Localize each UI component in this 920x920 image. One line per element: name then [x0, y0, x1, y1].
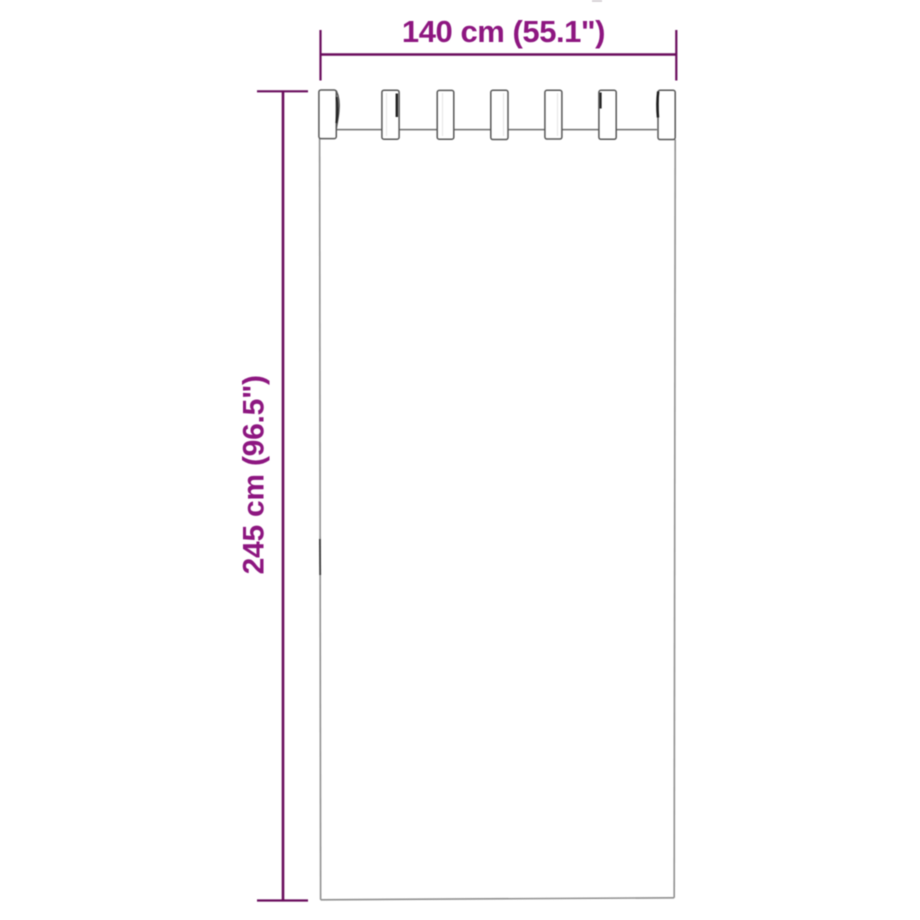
svg-text:245 cm (96.5"): 245 cm (96.5"): [238, 375, 271, 574]
svg-text:140 cm (55.1"): 140 cm (55.1"): [402, 14, 605, 49]
